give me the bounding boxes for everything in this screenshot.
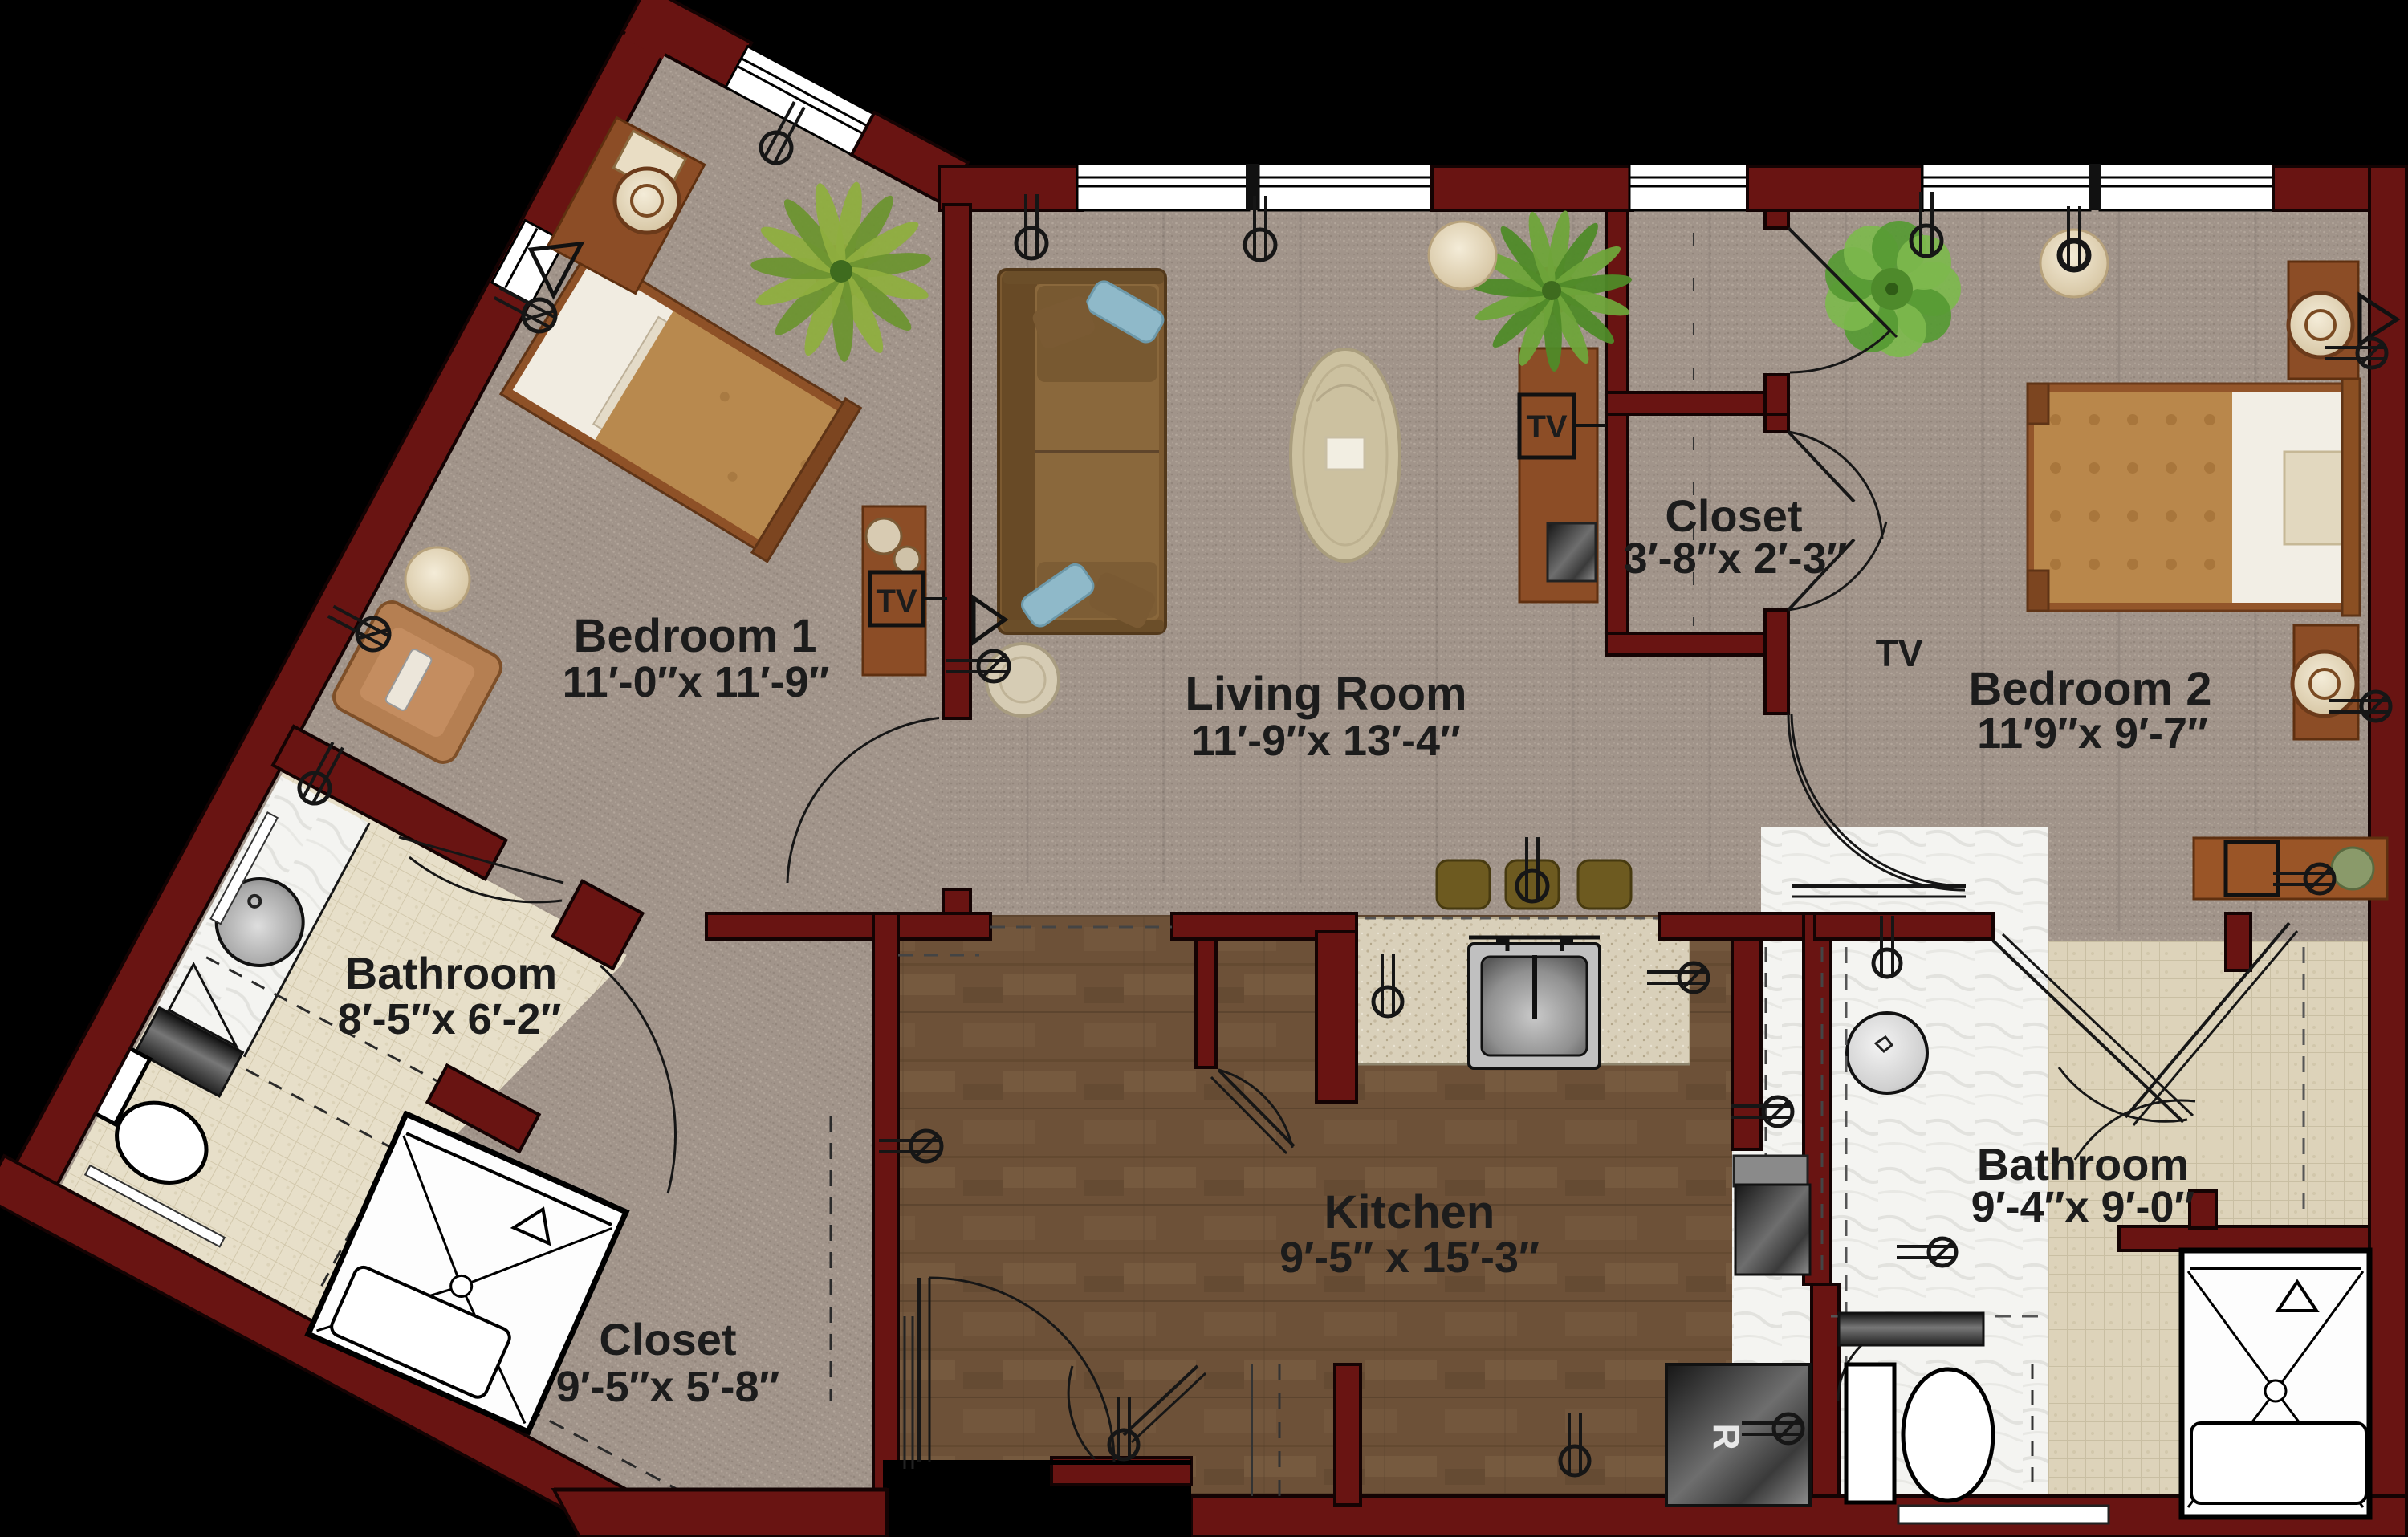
svg-text:Kitchen: Kitchen: [1324, 1186, 1495, 1238]
svg-text:Bathroom: Bathroom: [345, 948, 557, 998]
svg-text:Closet: Closet: [1665, 490, 1802, 541]
svg-text:TV: TV: [876, 583, 917, 619]
svg-text:Bathroom: Bathroom: [1977, 1139, 2189, 1189]
svg-text:R: R: [1706, 1423, 1747, 1450]
svg-text:3′-8″x 2′-3″: 3′-8″x 2′-3″: [1624, 535, 1848, 583]
svg-text:Living Room: Living Room: [1185, 668, 1466, 720]
svg-text:Bedroom 2: Bedroom 2: [1969, 663, 2212, 715]
svg-text:11′-9″x 13′-4″: 11′-9″x 13′-4″: [1191, 717, 1461, 765]
svg-text:TV: TV: [1526, 409, 1567, 445]
svg-text:9′-5″x 5′-8″: 9′-5″x 5′-8″: [556, 1363, 780, 1411]
svg-text:11′-0″x 11′-9″: 11′-0″x 11′-9″: [563, 658, 830, 706]
svg-text:Closet: Closet: [599, 1314, 736, 1364]
svg-text:9′-4″x 9′-0″: 9′-4″x 9′-0″: [1971, 1183, 2195, 1231]
svg-text:9′-5″ x 15′-3″: 9′-5″ x 15′-3″: [1279, 1234, 1540, 1282]
svg-text:TV: TV: [1876, 632, 1923, 674]
svg-text:Bedroom 1: Bedroom 1: [574, 610, 817, 662]
svg-text:11′9″x 9′-7″: 11′9″x 9′-7″: [1977, 710, 2208, 758]
svg-text:8′-5″x 6′-2″: 8′-5″x 6′-2″: [338, 995, 562, 1043]
